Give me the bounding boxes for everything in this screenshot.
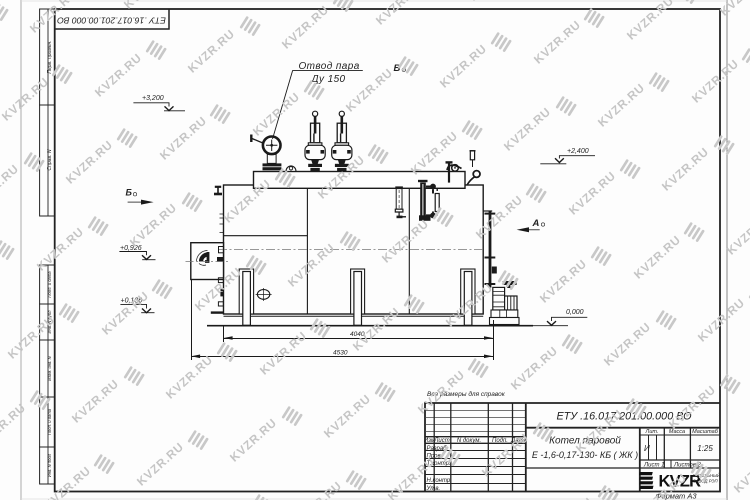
svg-text:Б: Б <box>126 188 133 198</box>
svg-text:Лит.: Лит. <box>645 429 659 435</box>
svg-text:+3,200: +3,200 <box>142 95 164 102</box>
svg-text:N докум.: N докум. <box>457 438 481 444</box>
svg-text:Перв. примен.: Перв. примен. <box>47 40 53 73</box>
svg-text:Справ. N: Справ. N <box>47 149 53 170</box>
svg-text:1:25: 1:25 <box>697 444 713 453</box>
svg-text:Н.контр.: Н.контр. <box>427 478 452 484</box>
svg-text:Масштаб: Масштаб <box>692 429 719 435</box>
svg-text:4530: 4530 <box>333 349 348 356</box>
svg-text:Утв.: Утв. <box>426 486 441 492</box>
svg-text:Взам. инв. N: Взам. инв. N <box>47 355 52 380</box>
svg-text:И: И <box>644 444 650 453</box>
svg-text:ЕТУ .16.017.201.00.000 ВО: ЕТУ .16.017.201.00.000 ВО <box>57 16 166 26</box>
svg-text:+2,400: +2,400 <box>567 148 589 155</box>
svg-text:0,000: 0,000 <box>566 309 584 316</box>
svg-text:Лист 1: Лист 1 <box>643 463 664 469</box>
svg-text:Подп. и дата: Подп. и дата <box>47 408 52 435</box>
svg-text:Подп.: Подп. <box>492 438 508 444</box>
svg-text:А: А <box>532 218 540 229</box>
svg-text:Инв. N подл: Инв. N подл <box>47 453 52 477</box>
svg-text:Лист: Лист <box>433 438 449 444</box>
svg-text:Подп. и дата: Подп. и дата <box>47 271 52 298</box>
